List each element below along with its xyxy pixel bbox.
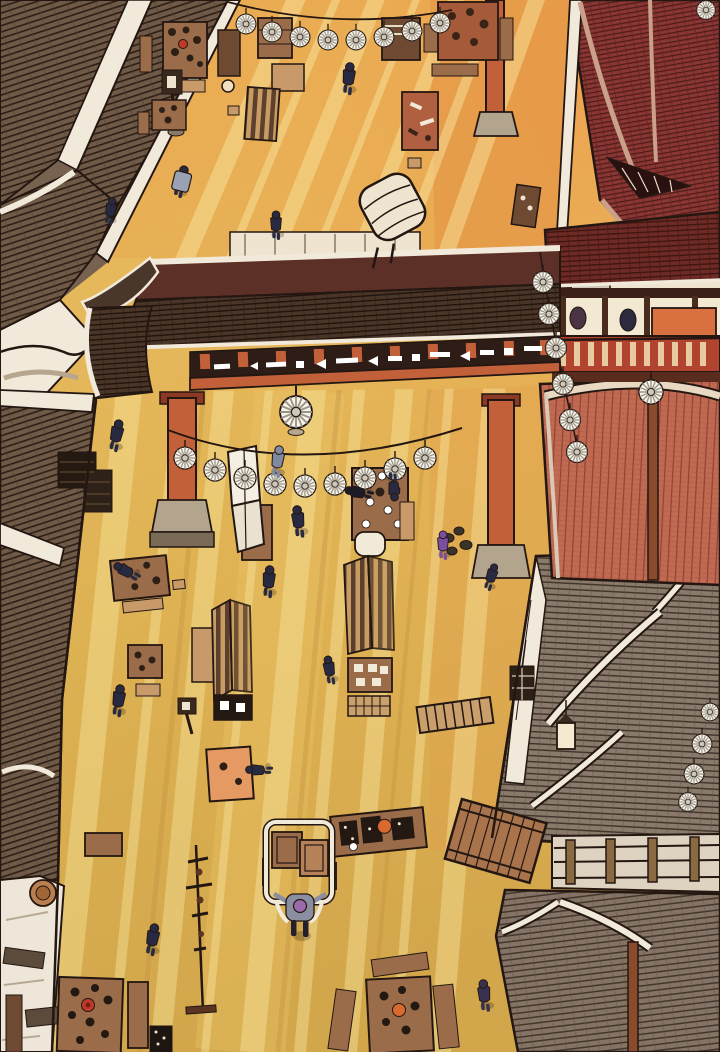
stool — [228, 106, 239, 115]
long-food-table — [330, 807, 427, 857]
barrel — [30, 880, 56, 906]
white-counter — [355, 532, 385, 556]
orange-screen — [652, 308, 716, 338]
orange-table — [206, 747, 254, 802]
veranda-building — [545, 212, 720, 382]
illustration — [0, 0, 720, 1052]
small-stall — [511, 185, 540, 228]
striped-stall — [344, 556, 394, 716]
fan — [697, 0, 716, 19]
striped-stall — [244, 87, 280, 141]
fence — [552, 834, 720, 892]
table — [85, 833, 122, 856]
table — [272, 64, 304, 91]
veranda-railing — [552, 336, 720, 372]
sunset-roof-right — [540, 378, 720, 585]
roof-pole — [628, 942, 638, 1052]
roof-pole — [648, 402, 658, 580]
